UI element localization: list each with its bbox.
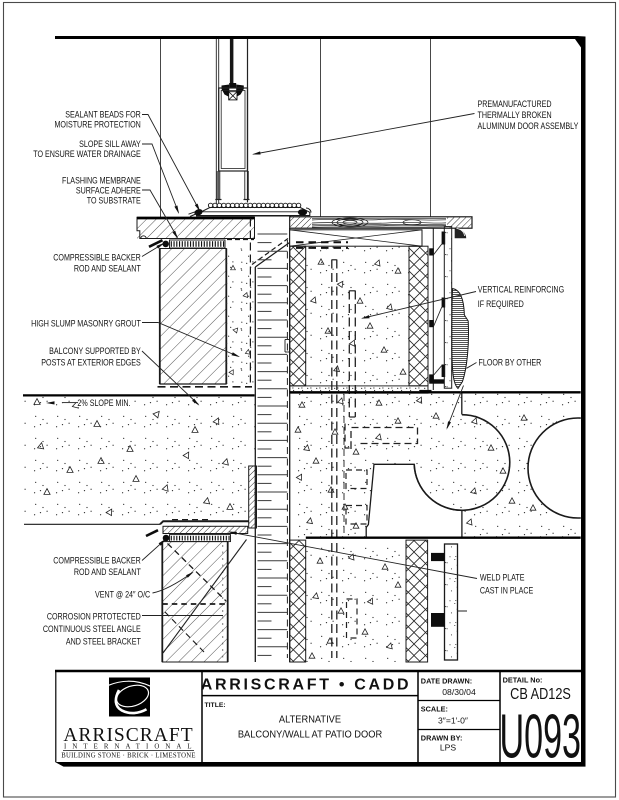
svg-text:DATE DRAWN:: DATE DRAWN:	[421, 677, 472, 686]
svg-text:COMPRESSIBLE BACKER: COMPRESSIBLE BACKER	[53, 251, 141, 262]
svg-text:INTERNATIONAL: INTERNATIONAL	[64, 744, 198, 751]
svg-text:FLOOR BY OTHER: FLOOR BY OTHER	[479, 357, 542, 368]
svg-text:U093: U093	[500, 702, 581, 771]
svg-text:3″=1′-0″: 3″=1′-0″	[438, 716, 468, 726]
svg-text:IF REQUIRED: IF REQUIRED	[478, 298, 524, 309]
svg-text:ALUMINUM DOOR ASSEMBLY: ALUMINUM DOOR ASSEMBLY	[478, 120, 579, 131]
svg-text:CORROSION PRTOTECTED: CORROSION PRTOTECTED	[47, 611, 141, 622]
svg-text:VENT @ 24″ O/C: VENT @ 24″ O/C	[95, 588, 150, 599]
svg-text:CONTINUOUS STEEL ANGLE: CONTINUOUS STEEL ANGLE	[43, 623, 141, 634]
svg-text:BUILDING STONE · BRICK · LIMES: BUILDING STONE · BRICK · LIMESTONE	[61, 751, 195, 759]
svg-text:HIGH SLUMP MASONRY GROUT: HIGH SLUMP MASONRY GROUT	[31, 318, 141, 329]
svg-text:TO SUBSTRATE: TO SUBSTRATE	[87, 194, 141, 205]
svg-text:WELD PLATE: WELD PLATE	[480, 572, 525, 583]
svg-text:MOISTURE PROTECTION: MOISTURE PROTECTION	[54, 118, 140, 129]
svg-text:VERTICAL REINFORCING: VERTICAL REINFORCING	[478, 284, 564, 295]
svg-text:ALTERNATIVE: ALTERNATIVE	[279, 714, 341, 725]
svg-text:TITLE:: TITLE:	[205, 702, 226, 709]
svg-text:ROD AND SEALANT: ROD AND SEALANT	[74, 566, 141, 577]
svg-text:LPS: LPS	[440, 743, 457, 753]
svg-text:THERMALLY BROKEN: THERMALLY BROKEN	[478, 109, 552, 120]
svg-text:ARRISCRAFT • CADD: ARRISCRAFT • CADD	[201, 677, 412, 694]
svg-text:CB AD12S: CB AD12S	[510, 686, 571, 703]
svg-text:DETAIL No:: DETAIL No:	[503, 675, 543, 684]
svg-text:AND STEEL BRACKET: AND STEEL BRACKET	[66, 636, 141, 647]
svg-text:2% SLOPE MIN.: 2% SLOPE MIN.	[77, 397, 130, 408]
svg-text:08/30/04: 08/30/04	[442, 687, 476, 697]
svg-text:COMPRESSIBLE BACKER: COMPRESSIBLE BACKER	[53, 555, 141, 566]
svg-text:DRAWN BY:: DRAWN BY:	[421, 734, 463, 743]
svg-text:POSTS AT EXTERIOR EDGES: POSTS AT EXTERIOR EDGES	[41, 357, 141, 368]
svg-text:PREMANUFACTURED: PREMANUFACTURED	[478, 98, 552, 109]
svg-text:CAST IN PLACE: CAST IN PLACE	[480, 585, 534, 596]
svg-text:TO ENSURE WATER DRAINAGE: TO ENSURE WATER DRAINAGE	[33, 148, 141, 159]
svg-text:SCALE:: SCALE:	[421, 705, 448, 714]
svg-text:BALCONY SUPPORTED BY: BALCONY SUPPORTED BY	[49, 345, 141, 356]
svg-text:ROD AND SEALANT: ROD AND SEALANT	[74, 263, 141, 274]
svg-text:BALCONY/WALL AT PATIO DOOR: BALCONY/WALL AT PATIO DOOR	[238, 729, 382, 740]
